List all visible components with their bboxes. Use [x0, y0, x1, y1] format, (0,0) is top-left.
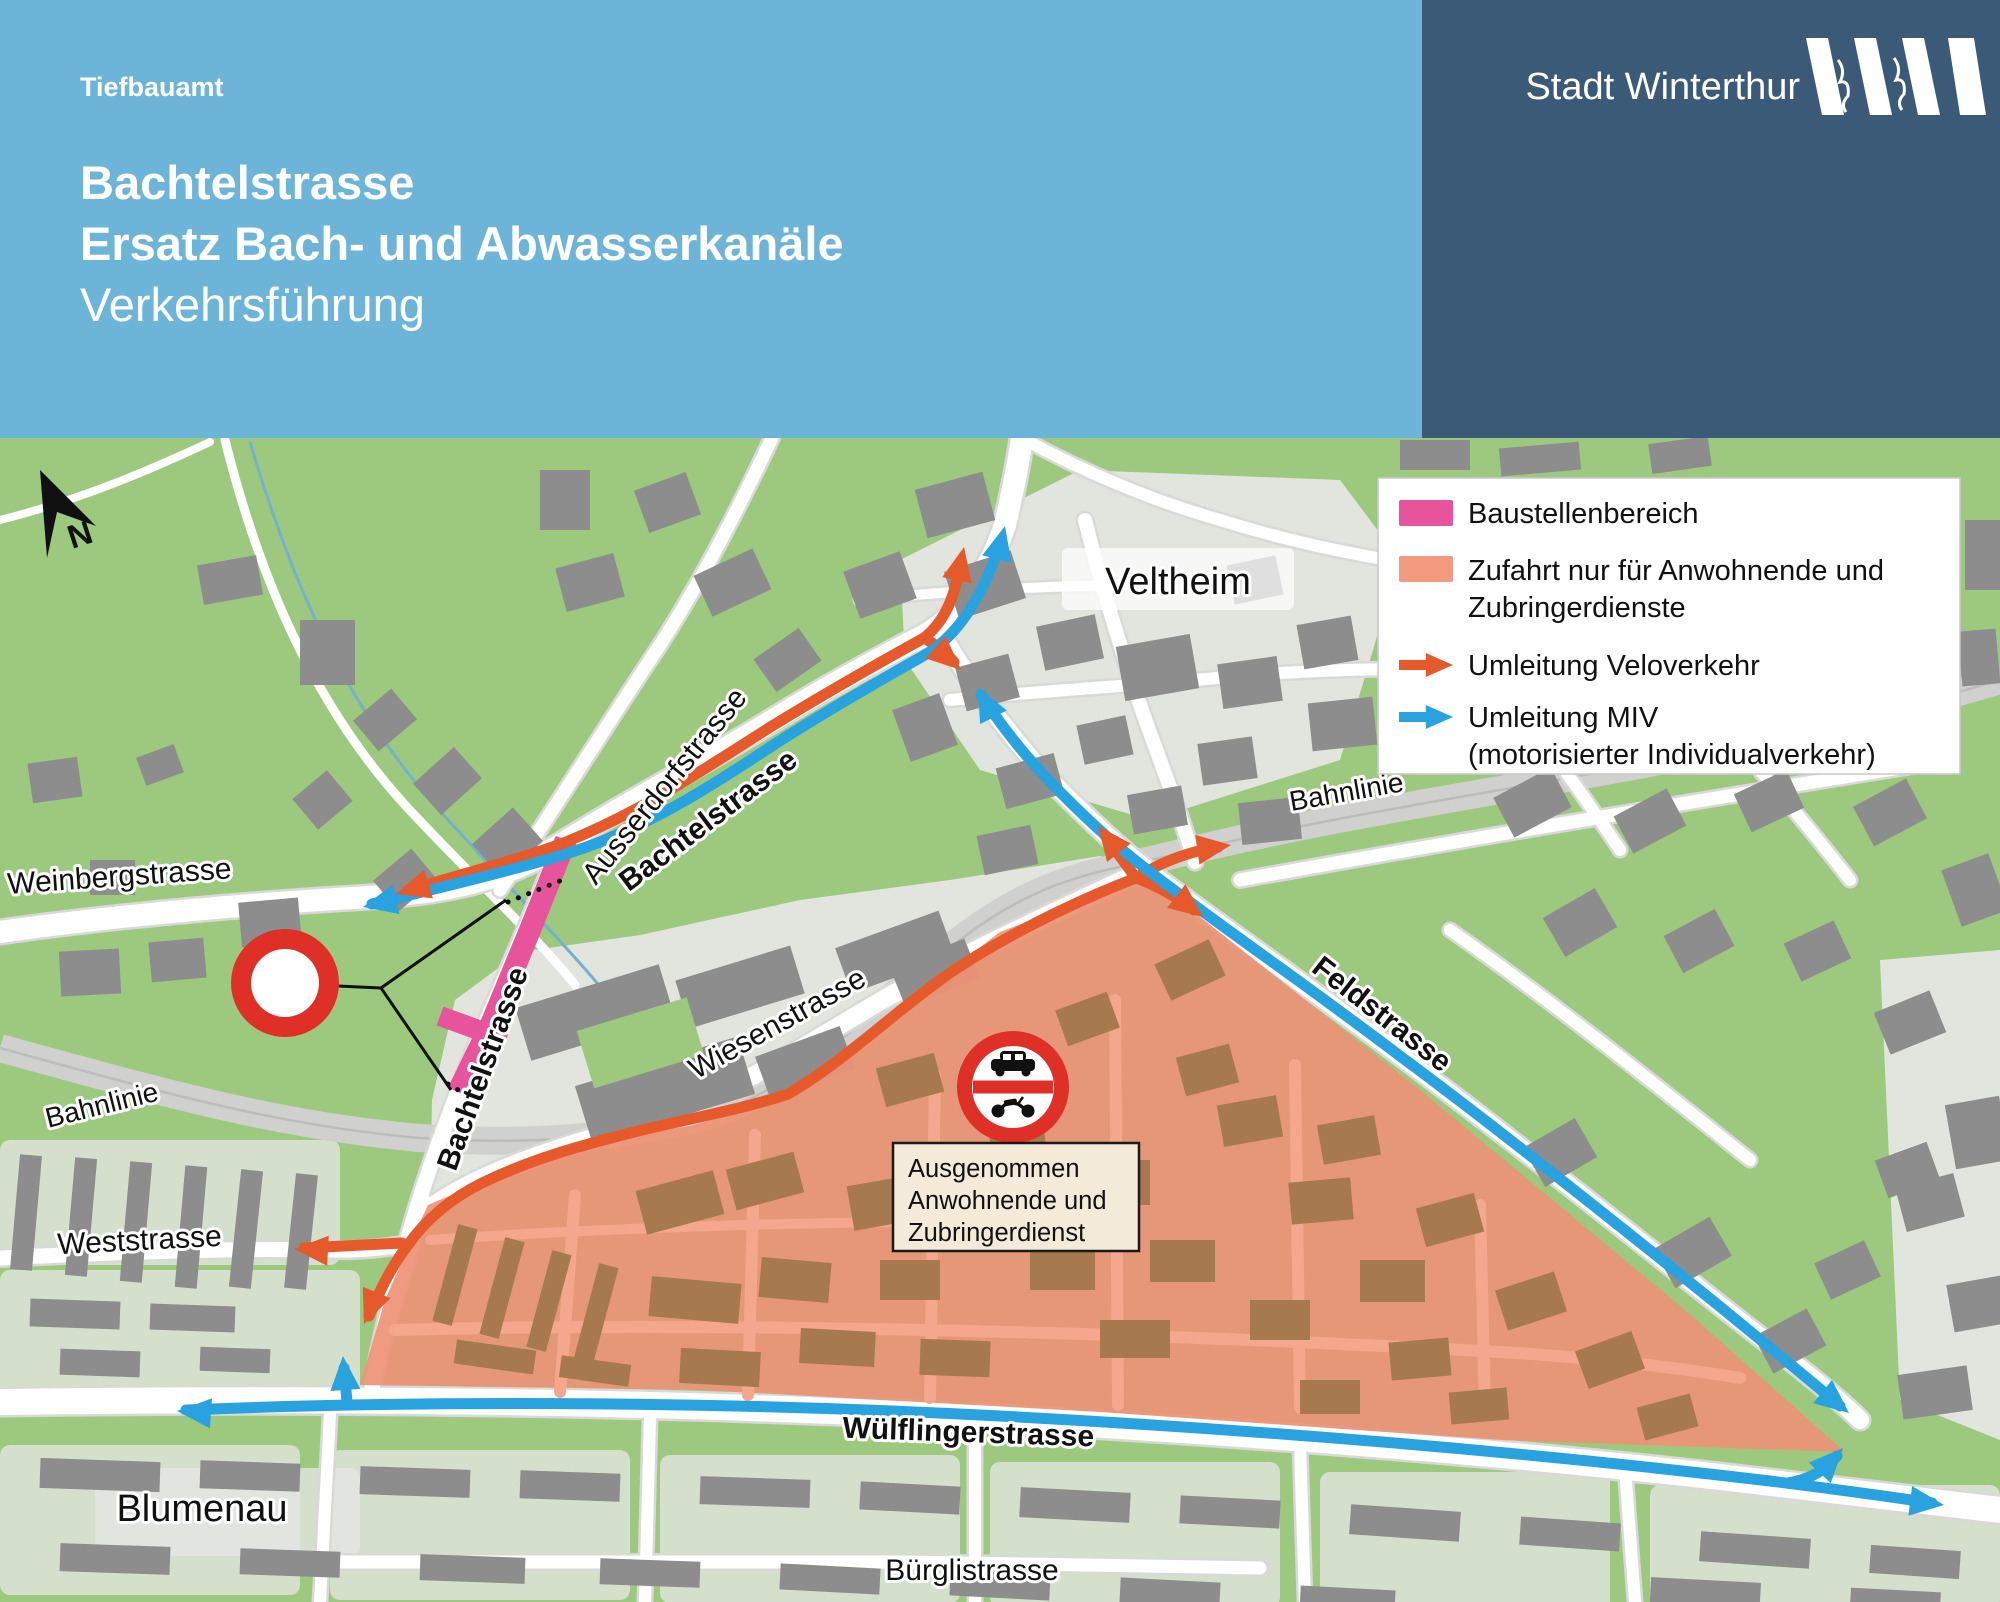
building [148, 938, 206, 983]
building [420, 1554, 526, 1584]
zone-building [648, 1276, 741, 1324]
zone-building [1300, 1380, 1360, 1414]
legend-label-line2: (motorisierter Individualverkehr) [1468, 739, 1876, 771]
legend-swatch-salmon_light [1399, 556, 1453, 582]
building [1958, 628, 2000, 686]
logo-text: Stadt Winterthur [1525, 66, 1800, 109]
exception-note-line: Anwohnende und [908, 1187, 1107, 1215]
zone-building [1388, 1337, 1451, 1380]
building [540, 470, 590, 530]
stadt-winterthur-logo [1798, 30, 1988, 150]
no-entry-sign [231, 929, 339, 1037]
building [200, 1347, 271, 1373]
building [1197, 736, 1257, 785]
zone-building [1449, 1388, 1510, 1425]
road [250, 1562, 1260, 1568]
map-legend: BaustellenbereichZufahrt nur für Anwohne… [1378, 478, 1960, 774]
page-title: Bachtelstrasse Ersatz Bach- und Abwasser… [80, 152, 844, 335]
title-line-1: Bachtelstrasse [80, 152, 844, 213]
building [1179, 1495, 1280, 1528]
zone-building [1150, 1240, 1215, 1282]
exception-note: AusgenommenAnwohnende undZubringerdienst [893, 1143, 1139, 1251]
zone-road [1480, 1205, 1485, 1412]
building [779, 1563, 880, 1594]
building [1400, 440, 1470, 470]
zone-building [1250, 1300, 1310, 1340]
building [27, 757, 82, 804]
zone-building [1360, 1260, 1425, 1302]
building [240, 1548, 341, 1577]
exception-note-line: Ausgenommen [908, 1155, 1080, 1183]
building [300, 620, 355, 685]
zone-building [1288, 1177, 1353, 1224]
building [600, 1558, 701, 1587]
zone-building [679, 1348, 761, 1387]
building [60, 1349, 141, 1378]
exception-note-line: Zubringerdienst [908, 1219, 1085, 1247]
legend-label: Zufahrt nur für Anwohnende und [1468, 555, 1884, 587]
zone-building [919, 1339, 990, 1377]
building [1297, 616, 1359, 670]
legend-label: Baustellenbereich [1468, 498, 1699, 530]
zone-building [880, 1260, 940, 1300]
header-brand-panel: Stadt Winterthur [1422, 0, 2000, 438]
building [1946, 1276, 2000, 1333]
building [700, 1476, 811, 1508]
header: Stadt Winterthur Tiefbauamt Bachtelstras… [0, 0, 2000, 438]
poster: AusgenommenAnwohnende undZubringerdienst… [0, 0, 2000, 1602]
building [1019, 1487, 1130, 1523]
road [1300, 1445, 1305, 1602]
zone-building [799, 1328, 876, 1367]
no-motor-vehicles-sign [957, 1031, 1069, 1143]
zone-building [1030, 1250, 1095, 1290]
legend-swatch-pink [1399, 500, 1453, 526]
building [60, 1543, 171, 1575]
building [859, 1481, 960, 1514]
building [1217, 656, 1283, 709]
zone-building [1100, 1320, 1170, 1358]
department-label: Tiefbauamt [80, 72, 224, 103]
legend-label: Umleitung MIV [1468, 702, 1659, 734]
building [59, 948, 121, 996]
title-line-2: Ersatz Bach- und Abwasserkanäle [80, 213, 844, 274]
map-label-blumenau: Blumenau [116, 1488, 287, 1530]
map-label-buerglistrasse: Bürglistrasse [885, 1554, 1058, 1587]
zone-road [1295, 1065, 1300, 1408]
legend-label: Umleitung Veloverkehr [1468, 650, 1760, 682]
building [520, 1470, 621, 1501]
building [360, 1466, 471, 1498]
map-label-veltheim: Veltheim [1105, 561, 1251, 603]
building [200, 1460, 301, 1491]
building [1308, 697, 1378, 752]
building [150, 1304, 236, 1333]
building [40, 1458, 161, 1492]
zone-building [758, 1257, 831, 1303]
building [30, 1298, 121, 1329]
legend-label-line2: Zubringerdienste [1468, 592, 1686, 624]
subtitle: Verkehrsführung [80, 274, 844, 335]
building [1965, 520, 2000, 590]
